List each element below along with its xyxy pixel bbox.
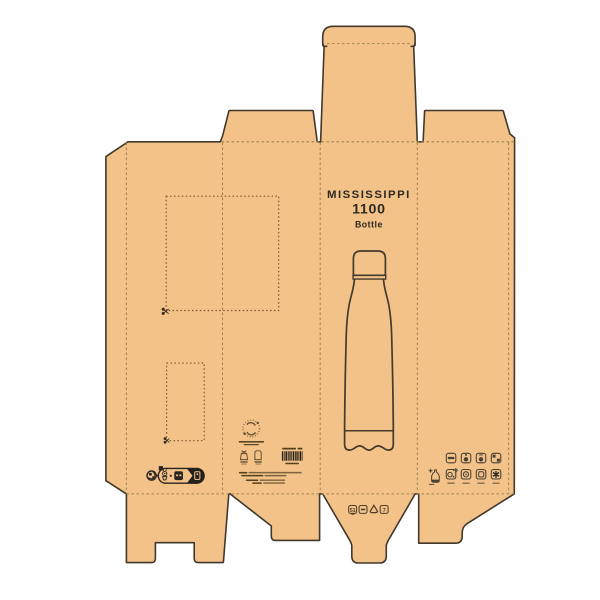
svg-text:Bottle: Bottle <box>355 219 383 229</box>
svg-text:MISSISSIPPI: MISSISSIPPI <box>327 189 411 201</box>
svg-text:51: 51 <box>350 508 356 514</box>
svg-text:1100: 1100 <box>352 202 386 218</box>
svg-text:7: 7 <box>383 508 386 514</box>
